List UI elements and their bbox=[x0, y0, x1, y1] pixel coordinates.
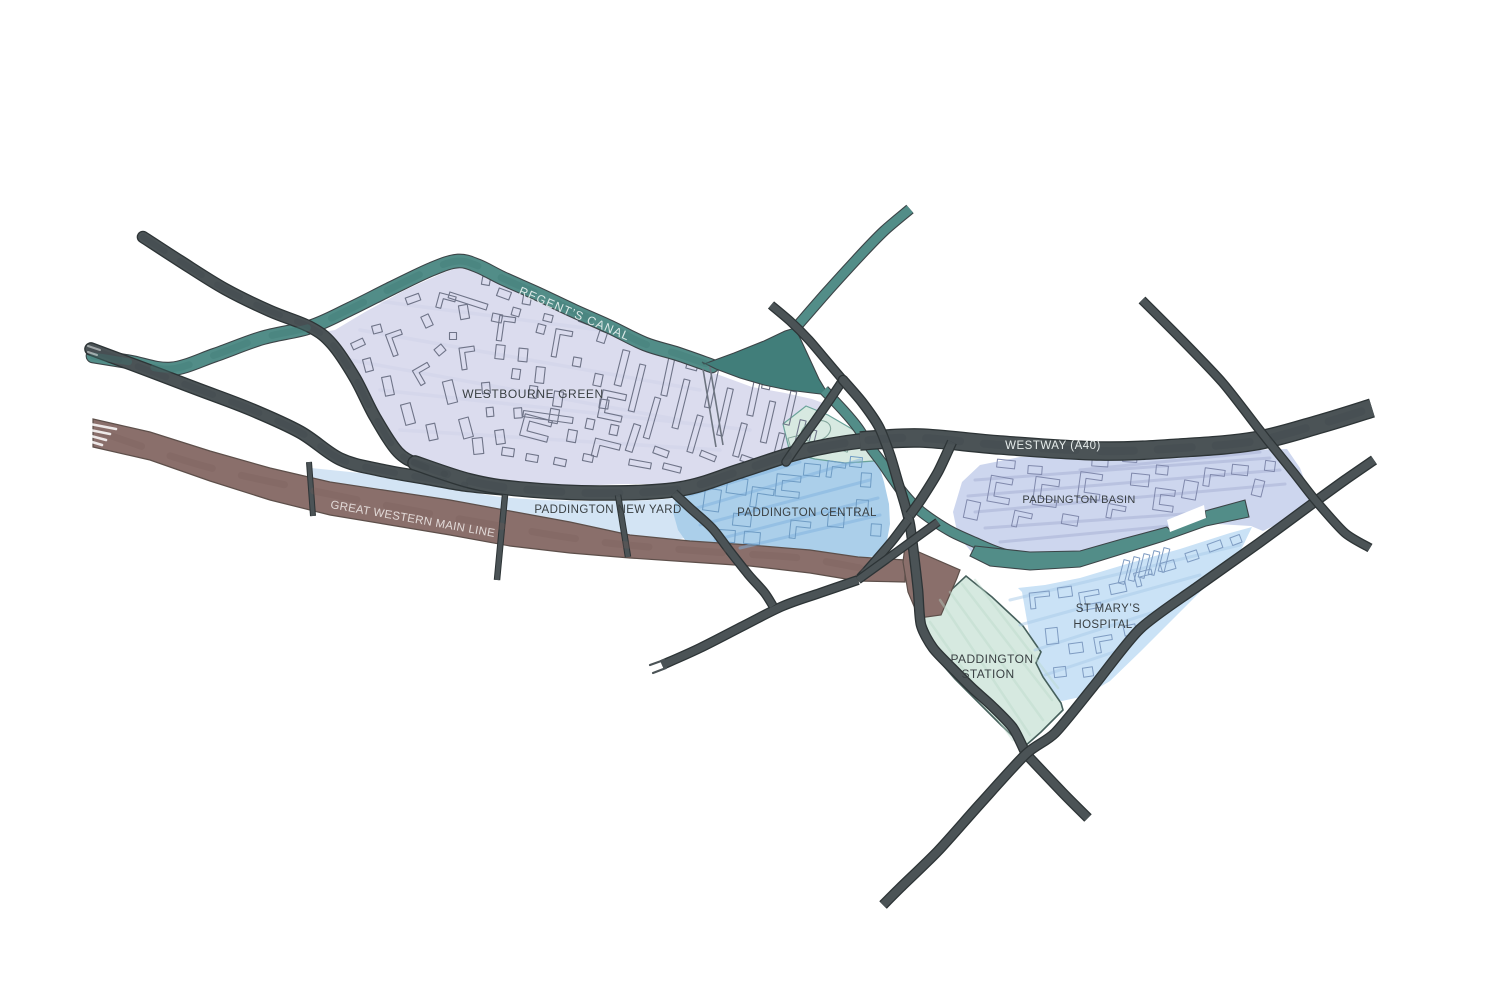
svg-text:PADDINGTON NEW YARD: PADDINGTON NEW YARD bbox=[534, 504, 681, 516]
svg-text:PADDINGTON CENTRAL: PADDINGTON CENTRAL bbox=[737, 507, 877, 519]
svg-text:PADDINGTON: PADDINGTON bbox=[951, 652, 1034, 666]
svg-text:STATION: STATION bbox=[961, 667, 1014, 681]
svg-text:HOSPITAL: HOSPITAL bbox=[1073, 619, 1132, 631]
svg-text:WESTBOURNE GREEN: WESTBOURNE GREEN bbox=[462, 387, 604, 401]
svg-text:WESTWAY (A40): WESTWAY (A40) bbox=[1005, 440, 1101, 452]
svg-text:ST MARY’S: ST MARY’S bbox=[1076, 603, 1141, 615]
svg-text:PADDINGTON BASIN: PADDINGTON BASIN bbox=[1022, 494, 1135, 506]
